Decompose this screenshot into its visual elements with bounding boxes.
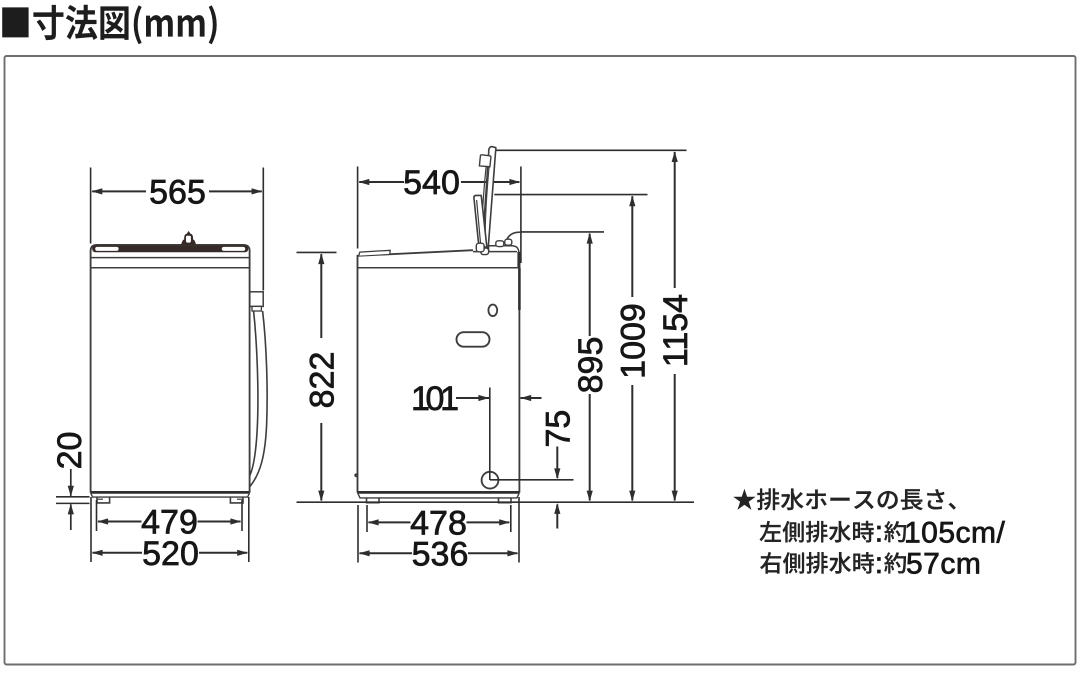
svg-text:75: 75 (540, 410, 578, 448)
svg-text::: : (875, 547, 883, 580)
svg-text:822: 822 (304, 352, 342, 409)
svg-text:20: 20 (51, 432, 89, 470)
svg-text:536: 536 (412, 536, 469, 574)
svg-text:565: 565 (149, 174, 206, 212)
svg-text:540: 540 (403, 164, 460, 202)
svg-text:1009: 1009 (615, 303, 653, 379)
svg-text:105cm/: 105cm/ (904, 517, 1006, 550)
svg-text::: : (875, 516, 883, 549)
svg-text:1154: 1154 (657, 294, 695, 367)
svg-text:520: 520 (142, 535, 199, 573)
svg-text:57cm: 57cm (906, 548, 981, 581)
svg-text:895: 895 (572, 337, 610, 394)
svg-text:101: 101 (411, 380, 459, 418)
